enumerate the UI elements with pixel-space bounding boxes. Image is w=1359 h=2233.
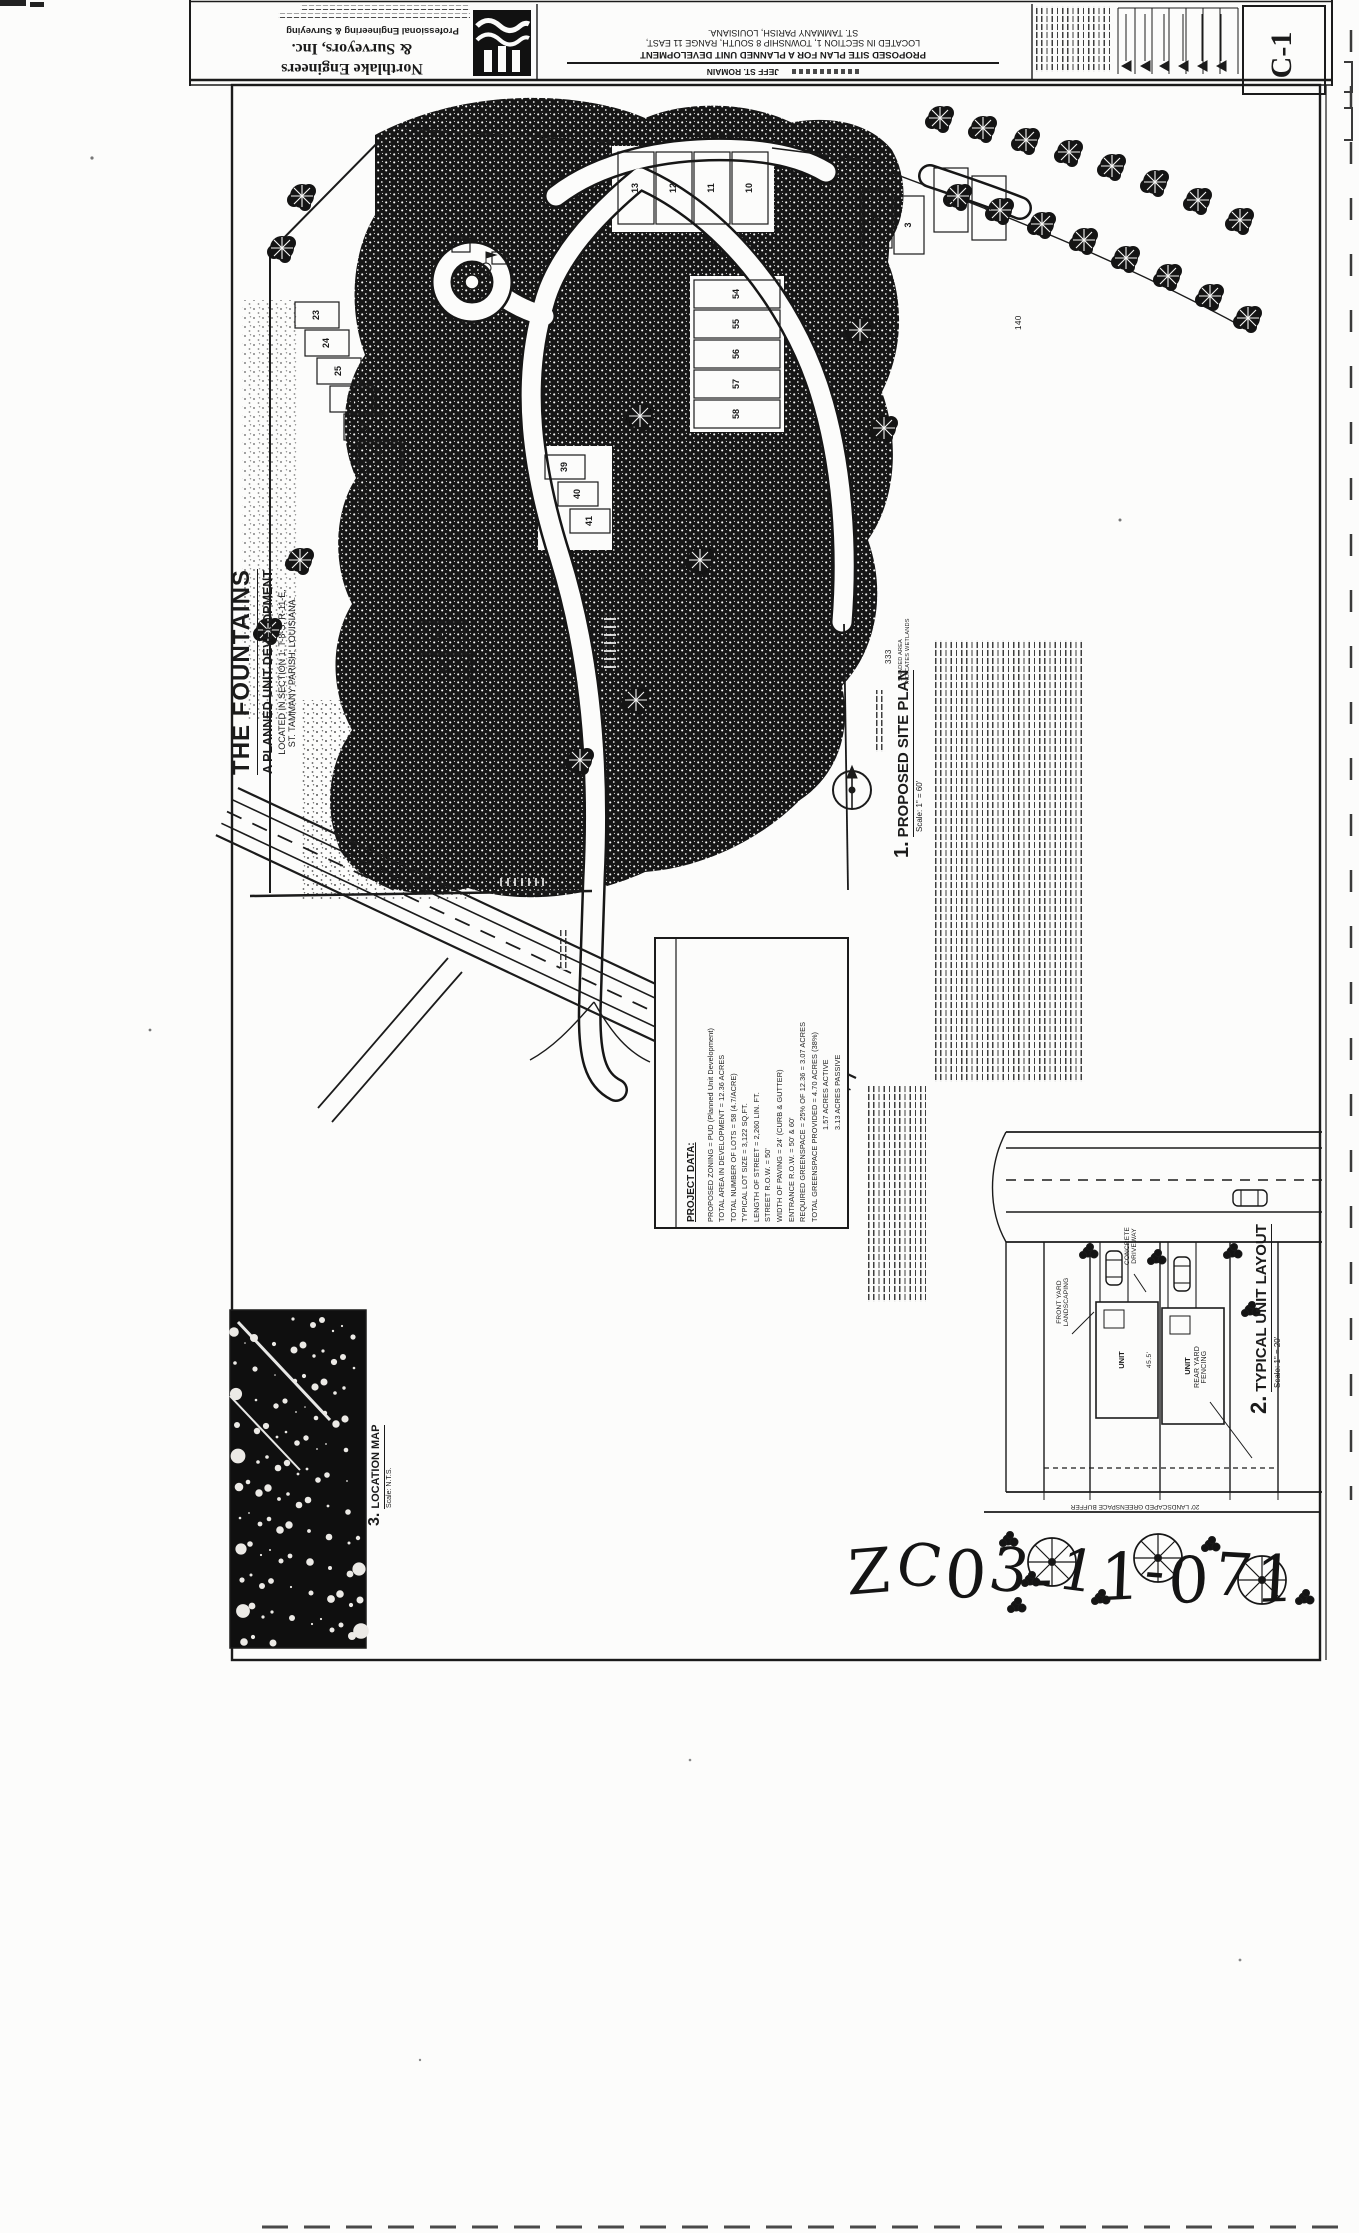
leader-note-illegible xyxy=(604,612,616,668)
firm-name-line-2: & Surveyors, Inc. xyxy=(232,38,472,58)
lot-number: 4 xyxy=(871,207,883,231)
project-data-line: TOTAL GREENSPACE PROVIDED = 4.70 ACRES (… xyxy=(809,944,821,1222)
lot-number: 39 xyxy=(559,455,571,479)
label-unit-1: UNIT xyxy=(1118,1340,1132,1380)
main-title-block: THE FOUNTAINS A PLANNED UNIT DEVELOPMENT… xyxy=(228,552,338,792)
main-subtitle: A PLANNED UNIT DEVELOPMENT xyxy=(261,552,275,792)
main-location-2: ST. TAMMANY PARISH, LOUISIANA. xyxy=(287,552,297,792)
lot-number: 1 xyxy=(983,196,995,220)
lot-number: 24 xyxy=(321,331,333,355)
view-label-site-plan: 1.PROPOSED SITE PLAN Scale: 1" = 60' xyxy=(891,646,937,858)
lot-number: 56 xyxy=(731,342,743,366)
lot-number: 25 xyxy=(333,359,345,383)
lot-number: 30 xyxy=(439,657,451,681)
project-data-line: PROPOSED ZONING = PUD (Planned Unit Deve… xyxy=(705,944,717,1222)
project-data: PROJECT DATA: PROPOSED ZONING = PUD (Pla… xyxy=(686,944,844,1222)
dimension-label: 1007 xyxy=(378,650,392,702)
firm-name-line-1: Northlake Engineers xyxy=(232,58,472,78)
project-title-line-2: LOCATED IN SECTION 1, TOWNSHIP 8 SOUTH, … xyxy=(548,38,1018,48)
revision-notes-illegible xyxy=(1036,6,1114,72)
dimension-label: 140 xyxy=(1014,296,1026,330)
lot-number: 3 xyxy=(903,213,915,237)
project-data-line: REQUIRED GREENSPACE = 25% OF 12.36 = 3.0… xyxy=(797,944,809,1222)
firm-address-line-1 xyxy=(300,5,470,10)
label-front-yard: FRONT YARDLANDSCAPING xyxy=(1056,1270,1076,1334)
project-data-line: TOTAL NUMBER OF LOTS = 58 (4.7/ACRE) xyxy=(728,944,740,1222)
dimension-label: 127 xyxy=(641,556,653,590)
lot-number: 26 xyxy=(346,387,358,411)
lot-number: 57 xyxy=(731,372,743,396)
project-data-line: 1.57 ACRES ACTIVE xyxy=(820,944,832,1222)
lot-number: 29 xyxy=(434,625,446,649)
leader-note-illegible xyxy=(876,690,886,752)
lot-number: 12 xyxy=(668,176,680,200)
project-title-line-3: ST. TAMMANY PARISH, LOUISIANA. xyxy=(548,28,1018,38)
firm-tagline: Professional Engineering & Surveying xyxy=(270,23,475,35)
wetland-area-east xyxy=(757,120,904,267)
project-data-line: 3.13 ACRES PASSIVE xyxy=(832,944,844,1222)
project-title-line-1: PROPOSED SITE PLAN FOR A PLANNED UNIT DE… xyxy=(548,48,1018,59)
lot-number: 28 xyxy=(374,443,386,467)
firm-address-line-2 xyxy=(278,13,470,18)
lot-number: 11 xyxy=(706,176,718,200)
general-notes-illegible xyxy=(935,640,1085,1082)
handwritten-case-number: ZC03-11-071 xyxy=(839,1533,1290,1652)
project-data-line: WIDTH OF PAVING = 24' (CURB & GUTTER) xyxy=(774,944,786,1222)
dimension-label: 333 xyxy=(884,630,896,664)
view-label-unit-layout: 2.TYPICAL UNIT LAYOUT Scale: 1" = 20' xyxy=(1246,1188,1302,1414)
title-rule xyxy=(567,62,999,64)
owner-label-illegible xyxy=(789,69,859,74)
lot-number: 10 xyxy=(744,176,756,200)
lot-number: 55 xyxy=(731,312,743,336)
site-plan-drawing xyxy=(0,0,1359,2233)
project-data-line: TYPICAL LOT SIZE = 3,122 SQ.FT. xyxy=(739,944,751,1222)
project-data-line: ENTRANCE R.O.W. = 50' & 60' xyxy=(786,944,798,1222)
owner-name: JEFF ST. ROMAIN xyxy=(707,67,779,77)
owner-row: JEFF ST. ROMAIN xyxy=(548,66,1018,76)
firm-name: Northlake Engineers & Surveyors, Inc. xyxy=(232,36,472,78)
lot-number: 2 xyxy=(945,188,957,212)
firm-logo xyxy=(473,10,531,76)
page-title: THE FOUNTAINS xyxy=(228,569,258,775)
project-data-line: TOTAL AREA IN DEVELOPMENT = 12.36 ACRES xyxy=(716,944,728,1222)
lot-number: 13 xyxy=(630,176,642,200)
scanned-site-plan-sheet: Professional Engineering & Surveying Nor… xyxy=(0,0,1359,2233)
lot-number: 41 xyxy=(584,509,596,533)
lot-number: 40 xyxy=(572,482,584,506)
label-concrete-driveway: CONCRETEDRIVEWAY xyxy=(1124,1218,1144,1274)
lot-number: 54 xyxy=(731,282,743,306)
label-greenspace-buffer: 20' LANDSCAPED GREENSPACE BUFFER xyxy=(1060,1500,1210,1510)
location-map-photo xyxy=(229,1310,369,1648)
revision-arrow-icons xyxy=(1122,14,1226,71)
leader-note-illegible xyxy=(500,878,546,886)
lot-number: 27 xyxy=(360,415,372,439)
label-unit-2: UNIT xyxy=(1184,1346,1198,1386)
lot-number: 58 xyxy=(731,402,743,426)
project-data-heading: PROJECT DATA: xyxy=(686,944,698,1222)
dimension-label: 45.5' xyxy=(1146,1330,1158,1368)
main-location-1: LOCATED IN SECTION 1, T-8-S, R-11-E, xyxy=(277,552,287,792)
wetland-note-1: SHADED AREAINDICATES WETLANDS xyxy=(356,472,378,520)
project-data-line: STREET R.O.W. = 50' xyxy=(762,944,774,1222)
lot-number: 23 xyxy=(311,303,323,327)
north-arrow-icon xyxy=(833,766,871,809)
project-title-block: JEFF ST. ROMAIN PROPOSED SITE PLAN FOR A… xyxy=(548,8,1018,78)
view-label-location-map: 3.LOCATION MAP Scale: N.T.S. xyxy=(366,1396,400,1526)
project-data-line: LENGTH OF STREET = 2,260 LIN. FT. xyxy=(751,944,763,1222)
leader-note-illegible xyxy=(560,930,568,970)
general-notes-illegible-tail xyxy=(868,1086,926,1302)
sheet-number: C-1 xyxy=(1254,18,1310,92)
